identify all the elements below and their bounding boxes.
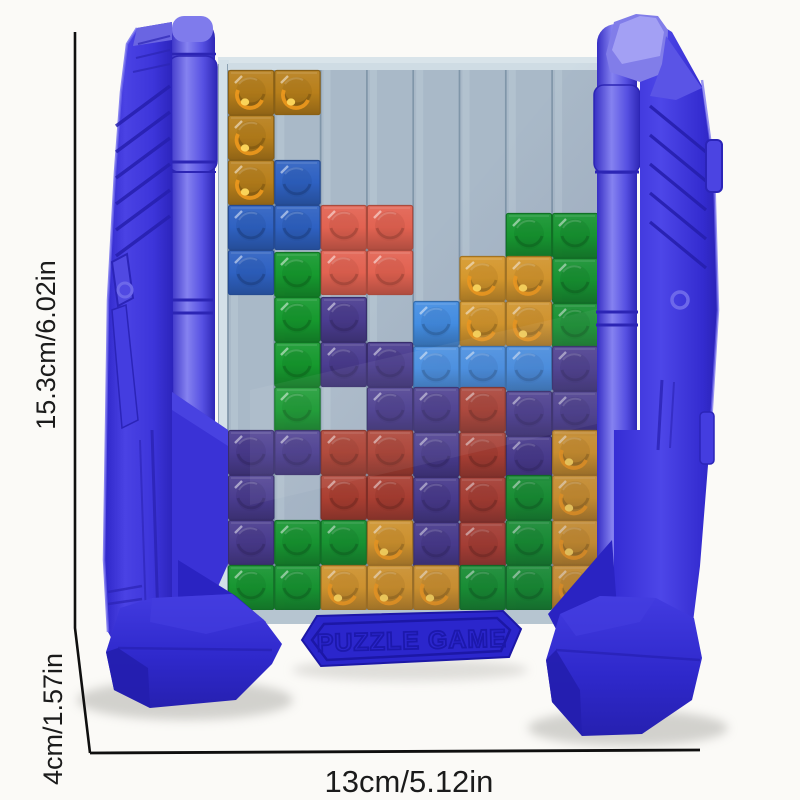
- svg-text:PUZZLE GAME: PUZZLE GAME: [316, 625, 507, 658]
- svg-text:13cm/5.12in: 13cm/5.12in: [325, 764, 494, 799]
- svg-text:4cm/1.57in: 4cm/1.57in: [38, 653, 68, 785]
- svg-text:15.3cm/6.02in: 15.3cm/6.02in: [31, 260, 61, 430]
